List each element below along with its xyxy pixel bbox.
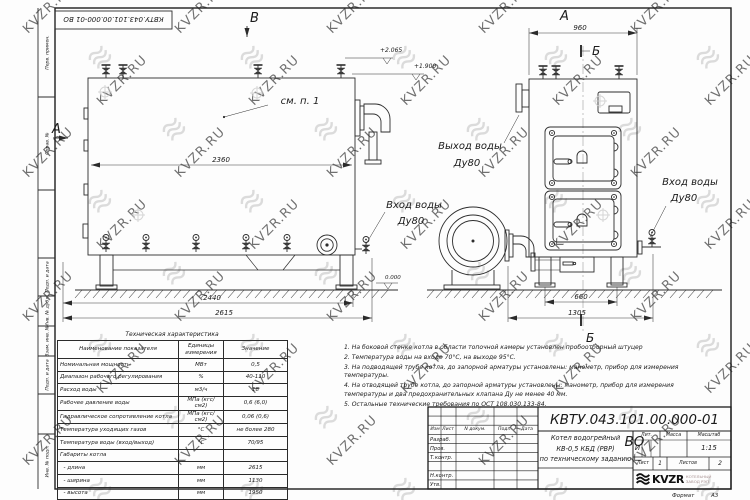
sig-row-label: Утв.: [430, 482, 441, 488]
dim-660: 660: [574, 293, 588, 301]
spec-cell: не более 280: [224, 424, 288, 437]
dim-2360: 2360: [212, 156, 230, 164]
product-title-line1: Котел водогрейный: [539, 434, 632, 442]
sig-header-data: Дата: [514, 427, 540, 432]
watermark-logo-icon: [88, 189, 112, 213]
screw-icon: [611, 194, 616, 199]
margin-label: Подп. и дата: [45, 359, 51, 390]
sheet-value: 1: [653, 460, 667, 467]
elev-top: +2.065: [380, 47, 402, 54]
spec-cell: 0,06 (0,6): [224, 410, 288, 424]
spec-table: Наименование показателя Единицы измерени…: [57, 340, 288, 500]
spec-cell: Расход воды: [58, 384, 179, 397]
ground-hatch-group: [75, 290, 713, 298]
spec-cell: 1130: [224, 475, 288, 488]
spec-cell: Номинальная мощность: [58, 359, 179, 372]
sig-header-list: Лист: [435, 427, 461, 432]
inlet-flange-circle: [317, 235, 337, 255]
technical-notes: 1. На боковой стенке котла в области топ…: [344, 344, 710, 410]
watermark-logo-icon: [240, 189, 264, 213]
spec-cell: 70/95: [224, 437, 288, 450]
watermark-text: KVZR.RU: [476, 0, 532, 37]
note-line: 3. На подводящей трубе котла, до запорно…: [344, 364, 710, 382]
section-letter-b-bottom: Б: [586, 331, 594, 345]
spec-row: Гидравлическое сопротивление котлаМПа (к…: [58, 410, 288, 424]
elev-mid: +1.900: [414, 63, 436, 70]
inlet-valve-icon: [648, 230, 656, 248]
hinge-icon: [614, 231, 618, 239]
spec-header-value: Значение: [224, 341, 288, 359]
spec-cell: 40-110: [224, 371, 288, 384]
format-value: А3: [710, 493, 719, 499]
spec-cell: °С: [179, 424, 224, 437]
watermark-logo-icon: [696, 189, 720, 213]
logo-text: KVZR: [652, 473, 684, 486]
spec-cell: %: [179, 371, 224, 384]
spec-cell: Габариты котла: [58, 449, 179, 462]
drain-valve-icon: [192, 235, 200, 253]
hinge-icon: [614, 143, 618, 151]
watermark-logo-icon: [314, 261, 338, 285]
product-title-line3: по техническому заданию: [539, 455, 632, 463]
inlet-label-line1: Вход воды: [386, 200, 442, 211]
inlet-label-line2: Ду80: [397, 216, 424, 227]
sig-header-ndoc: N докум.: [460, 427, 490, 432]
sig-row-label: Т.контр.: [430, 455, 452, 461]
sheets-label: Листов: [667, 461, 709, 466]
spec-row: Габариты котла: [58, 449, 288, 462]
format-label: Формат: [672, 493, 695, 499]
margin-label: Инв. № подл.: [45, 446, 51, 478]
watermark-text: KVZR.RU: [628, 0, 684, 37]
view-letter-a: А: [559, 9, 569, 24]
screw-icon: [549, 180, 554, 185]
elev-zero: 0.000: [385, 275, 401, 281]
watermark-logo-icon: [314, 117, 338, 141]
right-view-front: 960 660 1305 А Б Б Выход воды Ду80 Вход …: [427, 9, 722, 345]
lit-value: И: [629, 444, 646, 452]
spec-cell: - высота: [58, 487, 179, 500]
spec-header-units: Единицы измерения: [179, 341, 224, 359]
spec-cell: мм: [179, 475, 224, 488]
watermark-logo-icon: [466, 261, 490, 285]
watermark-logo-icon: [466, 117, 490, 141]
screw-icon: [611, 180, 616, 185]
watermark-logo-icon: [162, 117, 186, 141]
spec-header-name: Наименование показателя: [58, 341, 179, 359]
spec-cell: - длина: [58, 462, 179, 475]
inlet-label-line2: Ду80: [670, 193, 697, 204]
valve-icon: [102, 65, 111, 78]
spec-cell: мм: [179, 462, 224, 475]
note-line: 1. На боковой стенке котла в области топ…: [344, 344, 710, 353]
top-stamp-doc-number: КВТУ.043.101.00.000-01 ВО: [63, 15, 164, 23]
mass-label: Масса: [660, 433, 687, 438]
spec-cell: 0,5: [224, 359, 288, 372]
inlet-label-line1: Вход воды: [662, 177, 718, 188]
drain-valve-icon: [142, 235, 150, 253]
spec-cell: Температура уходящих газов: [58, 424, 179, 437]
company-logo: KVZR КОТЕЛЬНЫЙ ЗАВОД РЭП: [636, 471, 730, 488]
scale-value: 1:15: [687, 444, 731, 452]
lock-icon: [577, 151, 587, 163]
margin-label: Взам. инв. №: [45, 325, 51, 356]
view-letter-b: В: [250, 11, 259, 26]
spec-cell: МВт: [179, 359, 224, 372]
spec-row: Диапазон рабочего регулирования%40-110: [58, 371, 288, 384]
section-letter-a: А: [51, 122, 61, 137]
spec-cell: Рабочее давление воды: [58, 397, 179, 411]
see-note-label: см. п. 1: [281, 96, 320, 107]
watermark-text: KVZR.RU: [324, 0, 380, 37]
spec-cell: Гидравлическое сопротивление котла: [58, 410, 179, 424]
hinge-icon: [614, 169, 618, 177]
margin-label: Подп. и дата: [45, 261, 51, 292]
margin-label: Справ. №: [45, 132, 51, 155]
spec-cell: 0,6 (6,0): [224, 397, 288, 411]
spec-cell: м3/ч: [179, 384, 224, 397]
valve-icon: [552, 66, 561, 79]
lit-label: Лит.: [633, 433, 660, 438]
product-title-line2: КВ-0,5 КБД (РВР): [539, 445, 632, 453]
spec-cell: МПа (кгс/см2): [179, 397, 224, 411]
spec-cell: 2615: [224, 462, 288, 475]
watermark-logo-icon: [618, 261, 642, 285]
spec-cell: 1950: [224, 487, 288, 500]
screw-icon: [549, 130, 554, 135]
sheet-label: Лист: [633, 461, 653, 466]
spec-cell: мм: [179, 487, 224, 500]
sig-row-label: Н.контр.: [430, 473, 453, 479]
spec-cell: [179, 449, 224, 462]
spec-cell: 18: [224, 384, 288, 397]
sig-row-label: Пров.: [430, 446, 445, 452]
spec-cell: °С: [179, 437, 224, 450]
valve-icon: [254, 65, 263, 78]
margin-label: Инв. № дубл.: [45, 295, 51, 326]
margin-label: Перв. примен.: [45, 35, 51, 70]
spec-cell: - ширина: [58, 475, 179, 488]
logo-subtitle: КОТЕЛЬНЫЙ ЗАВОД РЭП: [686, 475, 712, 484]
section-letter-b-top: Б: [592, 44, 600, 58]
valve-icon: [539, 66, 548, 79]
spec-cell: Температура воды (вход/выход): [58, 437, 179, 450]
spec-row: Температура уходящих газов°Сне более 280: [58, 424, 288, 437]
support-legs: [96, 255, 357, 289]
spec-row: - ширинамм1130: [58, 475, 288, 488]
spec-table-section: Техническая характеристика Наименование …: [57, 331, 287, 500]
spec-cell: Диапазон рабочего регулирования: [58, 371, 179, 384]
dim-960: 960: [573, 24, 587, 32]
note-line: 2. Температура воды на входе 70°С, на вы…: [344, 354, 710, 363]
spec-row: Номинальная мощностьМВт0,5: [58, 359, 288, 372]
spec-row: Рабочее давление водыМПа (кгс/см2)0,6 (6…: [58, 397, 288, 411]
drain-valve-icon: [242, 235, 250, 253]
outlet-label-line2: Ду80: [453, 158, 480, 169]
watermark-logo-icon: [544, 189, 568, 213]
valve-icon: [337, 65, 346, 78]
spec-table-title: Техническая характеристика: [57, 331, 287, 338]
cross-mark-icon: [593, 94, 607, 108]
spec-row: Температура воды (вход/выход)°С70/95: [58, 437, 288, 450]
screw-icon: [611, 241, 616, 246]
spec-header-row: Наименование показателя Единицы измерени…: [58, 341, 288, 359]
spec-row: Расход водым3/ч18: [58, 384, 288, 397]
base-frame: [535, 257, 627, 287]
doc-number: КВТУ.043.101.00.000-01 ВО: [540, 409, 729, 431]
spec-cell: [224, 449, 288, 462]
inspection-panel: [598, 92, 630, 113]
outlet-label-line1: Выход воды: [438, 141, 502, 152]
watermark-logo-icon: [162, 261, 186, 285]
valve-icon: [615, 66, 624, 79]
sig-row-label: Разраб.: [430, 437, 450, 443]
drawing-sheet: KVZR.RUKVZR.RUKVZR.RUKVZR.RUKVZR.RUKVZR.…: [0, 0, 750, 500]
note-line: 4. На отводящей трубе котла, до запорной…: [344, 382, 710, 400]
dim-2615: 2615: [215, 309, 233, 317]
drain-valve-icon: [283, 235, 291, 253]
hinge-icon: [614, 206, 618, 214]
watermark-logo-icon: [696, 45, 720, 69]
watermark-logo-icon: [314, 405, 338, 429]
screw-icon: [611, 130, 616, 135]
dim-1305: 1305: [568, 309, 586, 317]
sheets-value: 2: [709, 460, 731, 467]
outlet-flange: [516, 84, 529, 112]
scale-label: Масштаб: [687, 433, 731, 438]
watermark-text: KVZR.RU: [172, 0, 228, 37]
spec-row: - длинамм2615: [58, 462, 288, 475]
kvzr-logo-icon: [636, 472, 650, 487]
spec-row: - высотамм1950: [58, 487, 288, 500]
side-nozzles: [83, 108, 88, 238]
spec-cell: МПа (кгс/см2): [179, 410, 224, 424]
